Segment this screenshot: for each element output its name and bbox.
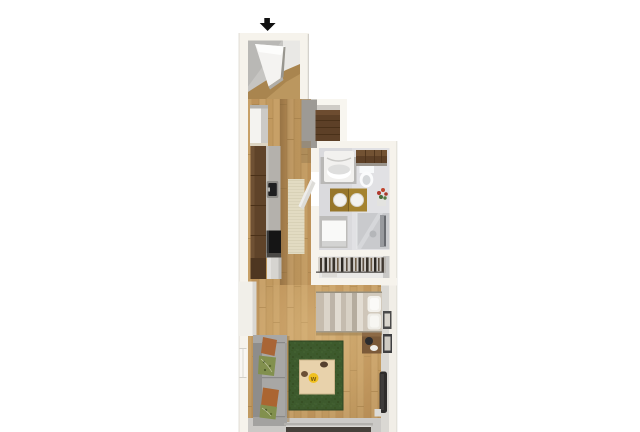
svg-text:w: w — [310, 376, 317, 383]
